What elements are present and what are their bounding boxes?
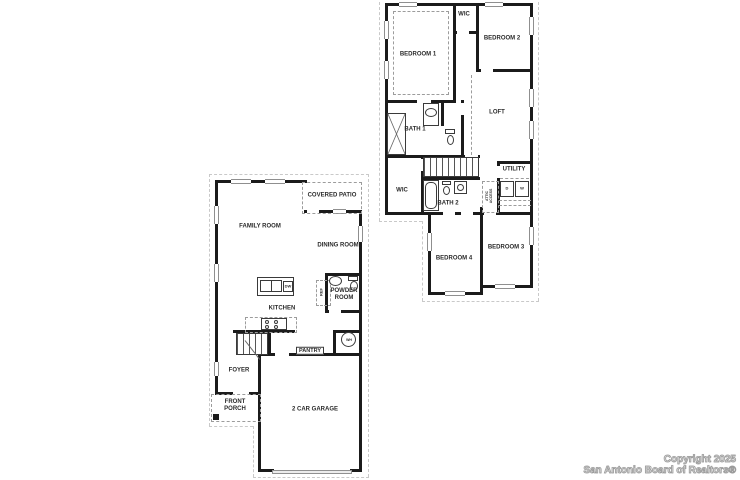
bedroom2-door-opening xyxy=(481,68,493,73)
loft-break-line xyxy=(471,75,472,155)
front-porch-label: FRONT PORCH xyxy=(221,399,249,413)
refrigerator-label: REF xyxy=(320,288,325,296)
powder-room-label: POWDER ROOM xyxy=(328,288,360,302)
wic-lower-label: WIC xyxy=(396,187,408,194)
bath2-door-opening xyxy=(443,211,455,216)
bath2-sink xyxy=(457,184,464,191)
covered-patio-label: COVERED PATIO xyxy=(308,192,357,199)
roof-dash-step xyxy=(379,221,422,222)
bedroom-2-label: BEDROOM 2 xyxy=(484,35,520,42)
wic-door-opening xyxy=(457,30,469,35)
toilet-bowl xyxy=(443,186,450,195)
second-floor-plan: WICBEDROOM 2BEDROOM 1LOFTBATH 1WICBATH 2… xyxy=(385,3,533,298)
bedroom-1-label: BEDROOM 1 xyxy=(400,51,436,58)
window xyxy=(427,233,432,251)
wall xyxy=(333,330,336,356)
wall xyxy=(428,212,431,295)
toilet-tank xyxy=(442,181,451,185)
burner xyxy=(265,325,269,329)
roof-dash-left2 xyxy=(253,426,254,477)
toilet-tank xyxy=(445,129,455,134)
wall xyxy=(385,212,431,215)
attic-access-label: ATTIC ACCESS xyxy=(485,185,493,207)
roof-dash-top xyxy=(209,174,369,175)
bathtub-inner xyxy=(425,182,437,209)
powder-sink xyxy=(329,276,342,286)
wall xyxy=(480,207,483,295)
bath-2-label: BATH 2 xyxy=(437,200,458,207)
toilet-bowl xyxy=(447,135,454,145)
porch-pillar xyxy=(213,414,219,420)
floor-plan-canvas: COVERED PATIOFAMILY ROOMDINING ROOMKITCH… xyxy=(0,0,740,480)
roof-dash-left xyxy=(379,0,380,221)
sink-divider xyxy=(271,280,272,292)
loft-label: LOFT xyxy=(489,109,505,116)
copyright-watermark: Copyright 2025 San Antonio Board of Real… xyxy=(583,454,736,476)
dining-room-label: DINING ROOM xyxy=(317,242,358,249)
window xyxy=(265,179,285,184)
bedroom-4-label: BEDROOM 4 xyxy=(436,255,472,262)
wic-top-label: WIC xyxy=(458,11,470,18)
roof-dash-left2 xyxy=(422,221,423,301)
window xyxy=(358,226,363,242)
window xyxy=(384,21,389,39)
wall xyxy=(530,3,533,288)
window xyxy=(485,2,503,7)
copyright-line1: Copyright 2025 xyxy=(583,454,736,465)
counter-dash xyxy=(500,178,529,179)
dishwasher-label: DW xyxy=(285,285,292,290)
wall xyxy=(268,333,271,355)
kitchen-label: KITCHEN xyxy=(269,305,296,312)
garage-door-opening xyxy=(275,352,289,357)
washer-label: W xyxy=(520,187,524,192)
burner xyxy=(265,320,269,324)
window xyxy=(231,179,251,184)
water-heater-label: WH xyxy=(346,338,352,342)
two-car-garage-label: 2 CAR GARAGE xyxy=(292,406,338,413)
garage-overhead-door xyxy=(272,470,352,474)
wall xyxy=(476,3,479,72)
roof-dash-right xyxy=(368,174,369,477)
burner xyxy=(274,320,278,324)
utility-door-opening xyxy=(496,166,501,178)
staircase xyxy=(236,333,268,355)
wall xyxy=(497,161,533,164)
bath1-door-opening xyxy=(460,103,465,115)
window xyxy=(529,89,534,107)
powder-door-opening xyxy=(329,309,341,314)
roof-dash-bottom xyxy=(422,301,539,302)
roof-dash-bottom xyxy=(253,477,369,478)
window xyxy=(399,2,417,7)
burner xyxy=(274,325,278,329)
staircase xyxy=(423,157,479,177)
bedroom-3-label: BEDROOM 3 xyxy=(488,244,524,251)
utility-label: UTILITY xyxy=(503,166,526,173)
shelf-dash xyxy=(499,205,531,206)
window xyxy=(384,61,389,79)
window xyxy=(445,291,465,296)
family-room-label: FAMILY ROOM xyxy=(239,223,281,230)
window xyxy=(529,121,534,139)
roof-dash-porch xyxy=(209,426,253,427)
shower xyxy=(387,113,406,155)
bedroom4-door-opening xyxy=(461,211,473,216)
shelf-dash xyxy=(499,200,531,201)
bath-1-label: BATH 1 xyxy=(404,126,425,133)
wall xyxy=(441,100,444,126)
roof-dash-left xyxy=(209,174,210,426)
pantry-label: PANTRY xyxy=(296,347,324,355)
dryer-label: D xyxy=(506,187,509,192)
window xyxy=(214,264,219,282)
roof-dash-right xyxy=(538,0,539,301)
window xyxy=(529,17,534,35)
window xyxy=(495,284,515,289)
window xyxy=(214,362,219,376)
wall xyxy=(359,210,362,472)
copyright-line2: San Antonio Board of Realtors® xyxy=(583,465,736,476)
wall xyxy=(453,3,456,103)
window xyxy=(529,227,534,245)
wall xyxy=(215,180,307,183)
foyer-label: FOYER xyxy=(229,367,250,374)
window xyxy=(214,206,219,224)
bath1-sink xyxy=(425,108,437,117)
first-floor-plan: COVERED PATIOFAMILY ROOMDINING ROOMKITCH… xyxy=(215,180,362,472)
